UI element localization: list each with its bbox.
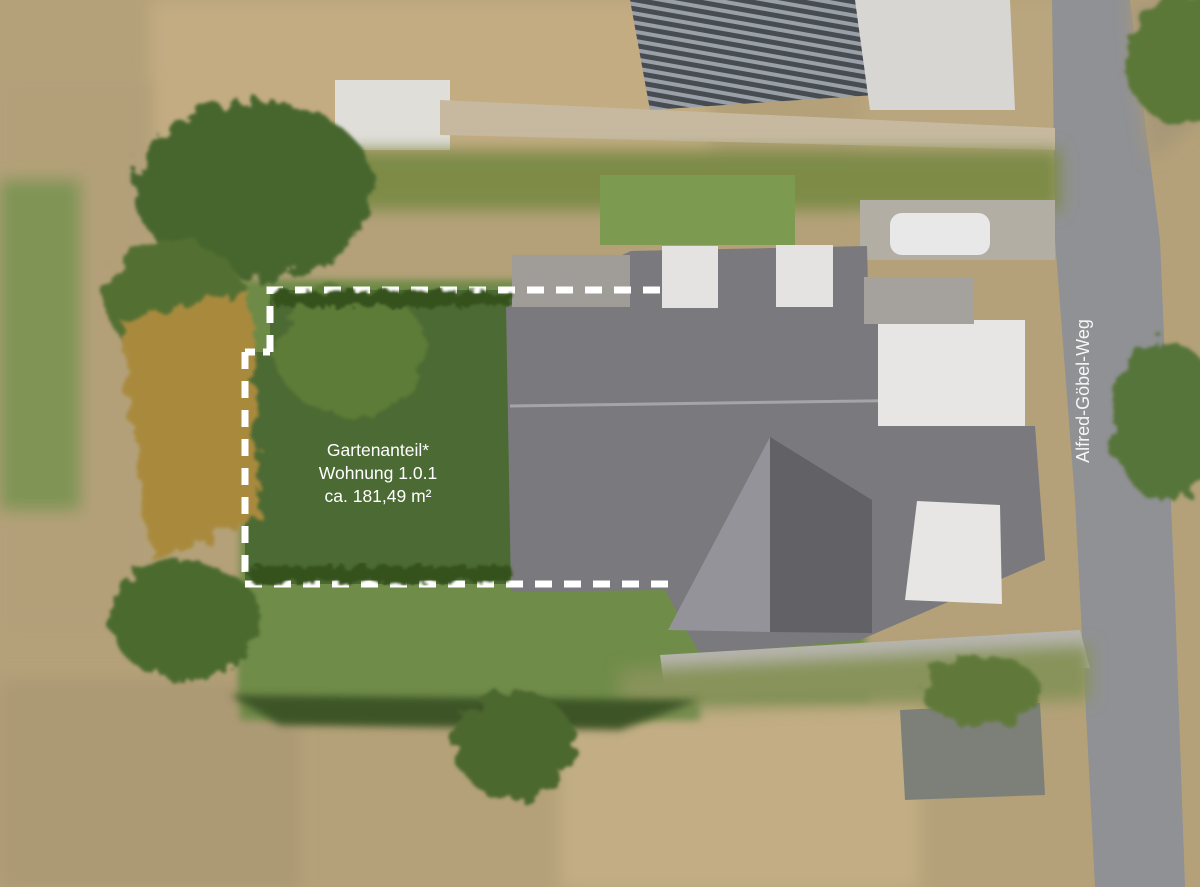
svg-text:Gartenanteil*: Gartenanteil* [327, 440, 429, 460]
svg-text:Alfred-Göbel-Weg: Alfred-Göbel-Weg [1073, 319, 1093, 463]
svg-text:Wohnung 1.0.1: Wohnung 1.0.1 [319, 463, 437, 483]
svg-text:ca. 181,49 m²: ca. 181,49 m² [325, 486, 432, 506]
